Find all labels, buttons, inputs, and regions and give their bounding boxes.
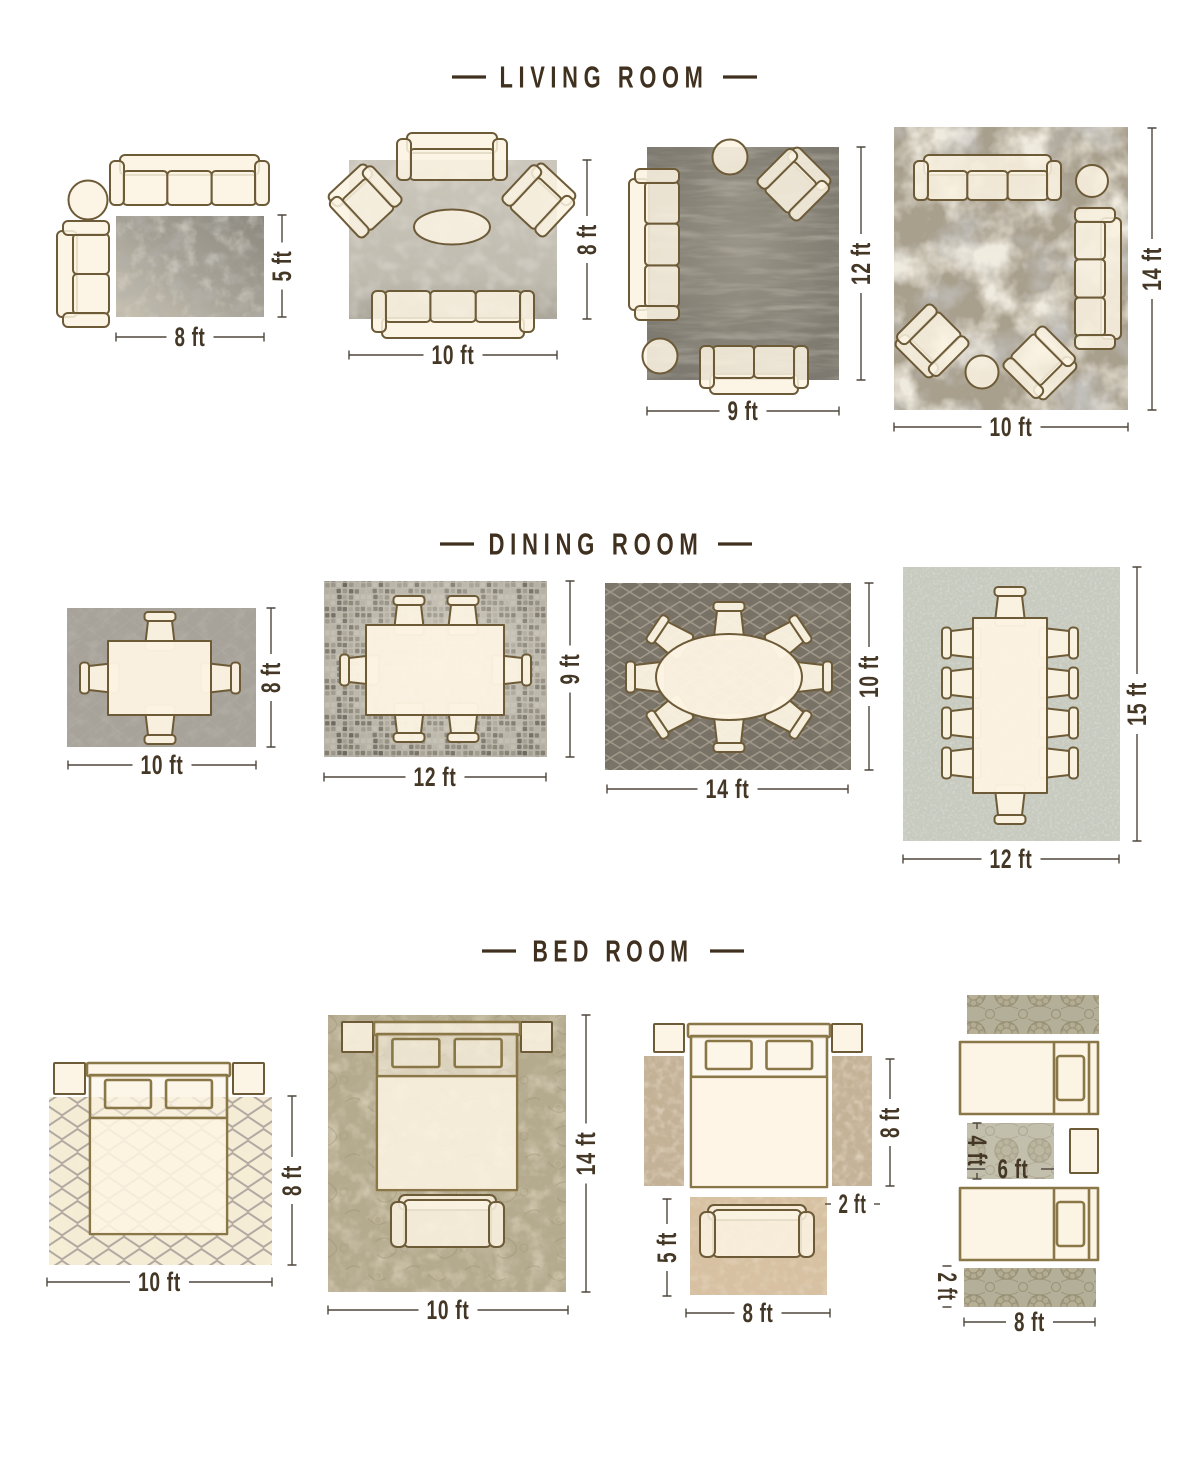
svg-text:2 ft: 2 ft: [932, 1273, 962, 1301]
svg-text:DINING ROOM: DINING ROOM: [489, 527, 704, 562]
svg-text:8 ft: 8 ft: [256, 662, 286, 693]
svg-text:14 ft: 14 ft: [571, 1132, 601, 1176]
svg-text:10 ft: 10 ft: [138, 1267, 181, 1297]
svg-text:LIVING ROOM: LIVING ROOM: [500, 60, 709, 95]
svg-text:BED ROOM: BED ROOM: [533, 934, 694, 969]
svg-text:12 ft: 12 ft: [414, 762, 457, 792]
svg-text:15 ft: 15 ft: [1122, 682, 1152, 726]
svg-text:5 ft: 5 ft: [652, 1232, 682, 1263]
svg-text:10 ft: 10 ft: [427, 1295, 470, 1325]
svg-text:8 ft: 8 ft: [1014, 1307, 1045, 1337]
svg-text:12 ft: 12 ft: [990, 844, 1033, 874]
svg-text:5 ft: 5 ft: [267, 251, 297, 282]
svg-text:8 ft: 8 ft: [175, 322, 206, 352]
svg-text:8 ft: 8 ft: [572, 224, 602, 255]
svg-text:14 ft: 14 ft: [706, 774, 750, 804]
svg-text:8 ft: 8 ft: [743, 1298, 774, 1328]
svg-text:6 ft: 6 ft: [998, 1154, 1029, 1184]
svg-text:4 ft: 4 ft: [962, 1136, 992, 1167]
svg-text:14 ft: 14 ft: [1137, 247, 1167, 291]
svg-text:2 ft: 2 ft: [839, 1189, 867, 1219]
svg-text:12 ft: 12 ft: [846, 242, 876, 285]
svg-text:9 ft: 9 ft: [555, 654, 585, 685]
svg-text:8 ft: 8 ft: [875, 1107, 905, 1138]
svg-text:9 ft: 9 ft: [728, 396, 759, 426]
svg-text:10 ft: 10 ft: [141, 750, 184, 780]
svg-text:10 ft: 10 ft: [990, 412, 1033, 442]
svg-text:10 ft: 10 ft: [432, 340, 475, 370]
svg-text:10 ft: 10 ft: [854, 655, 884, 698]
svg-text:8 ft: 8 ft: [277, 1165, 307, 1196]
